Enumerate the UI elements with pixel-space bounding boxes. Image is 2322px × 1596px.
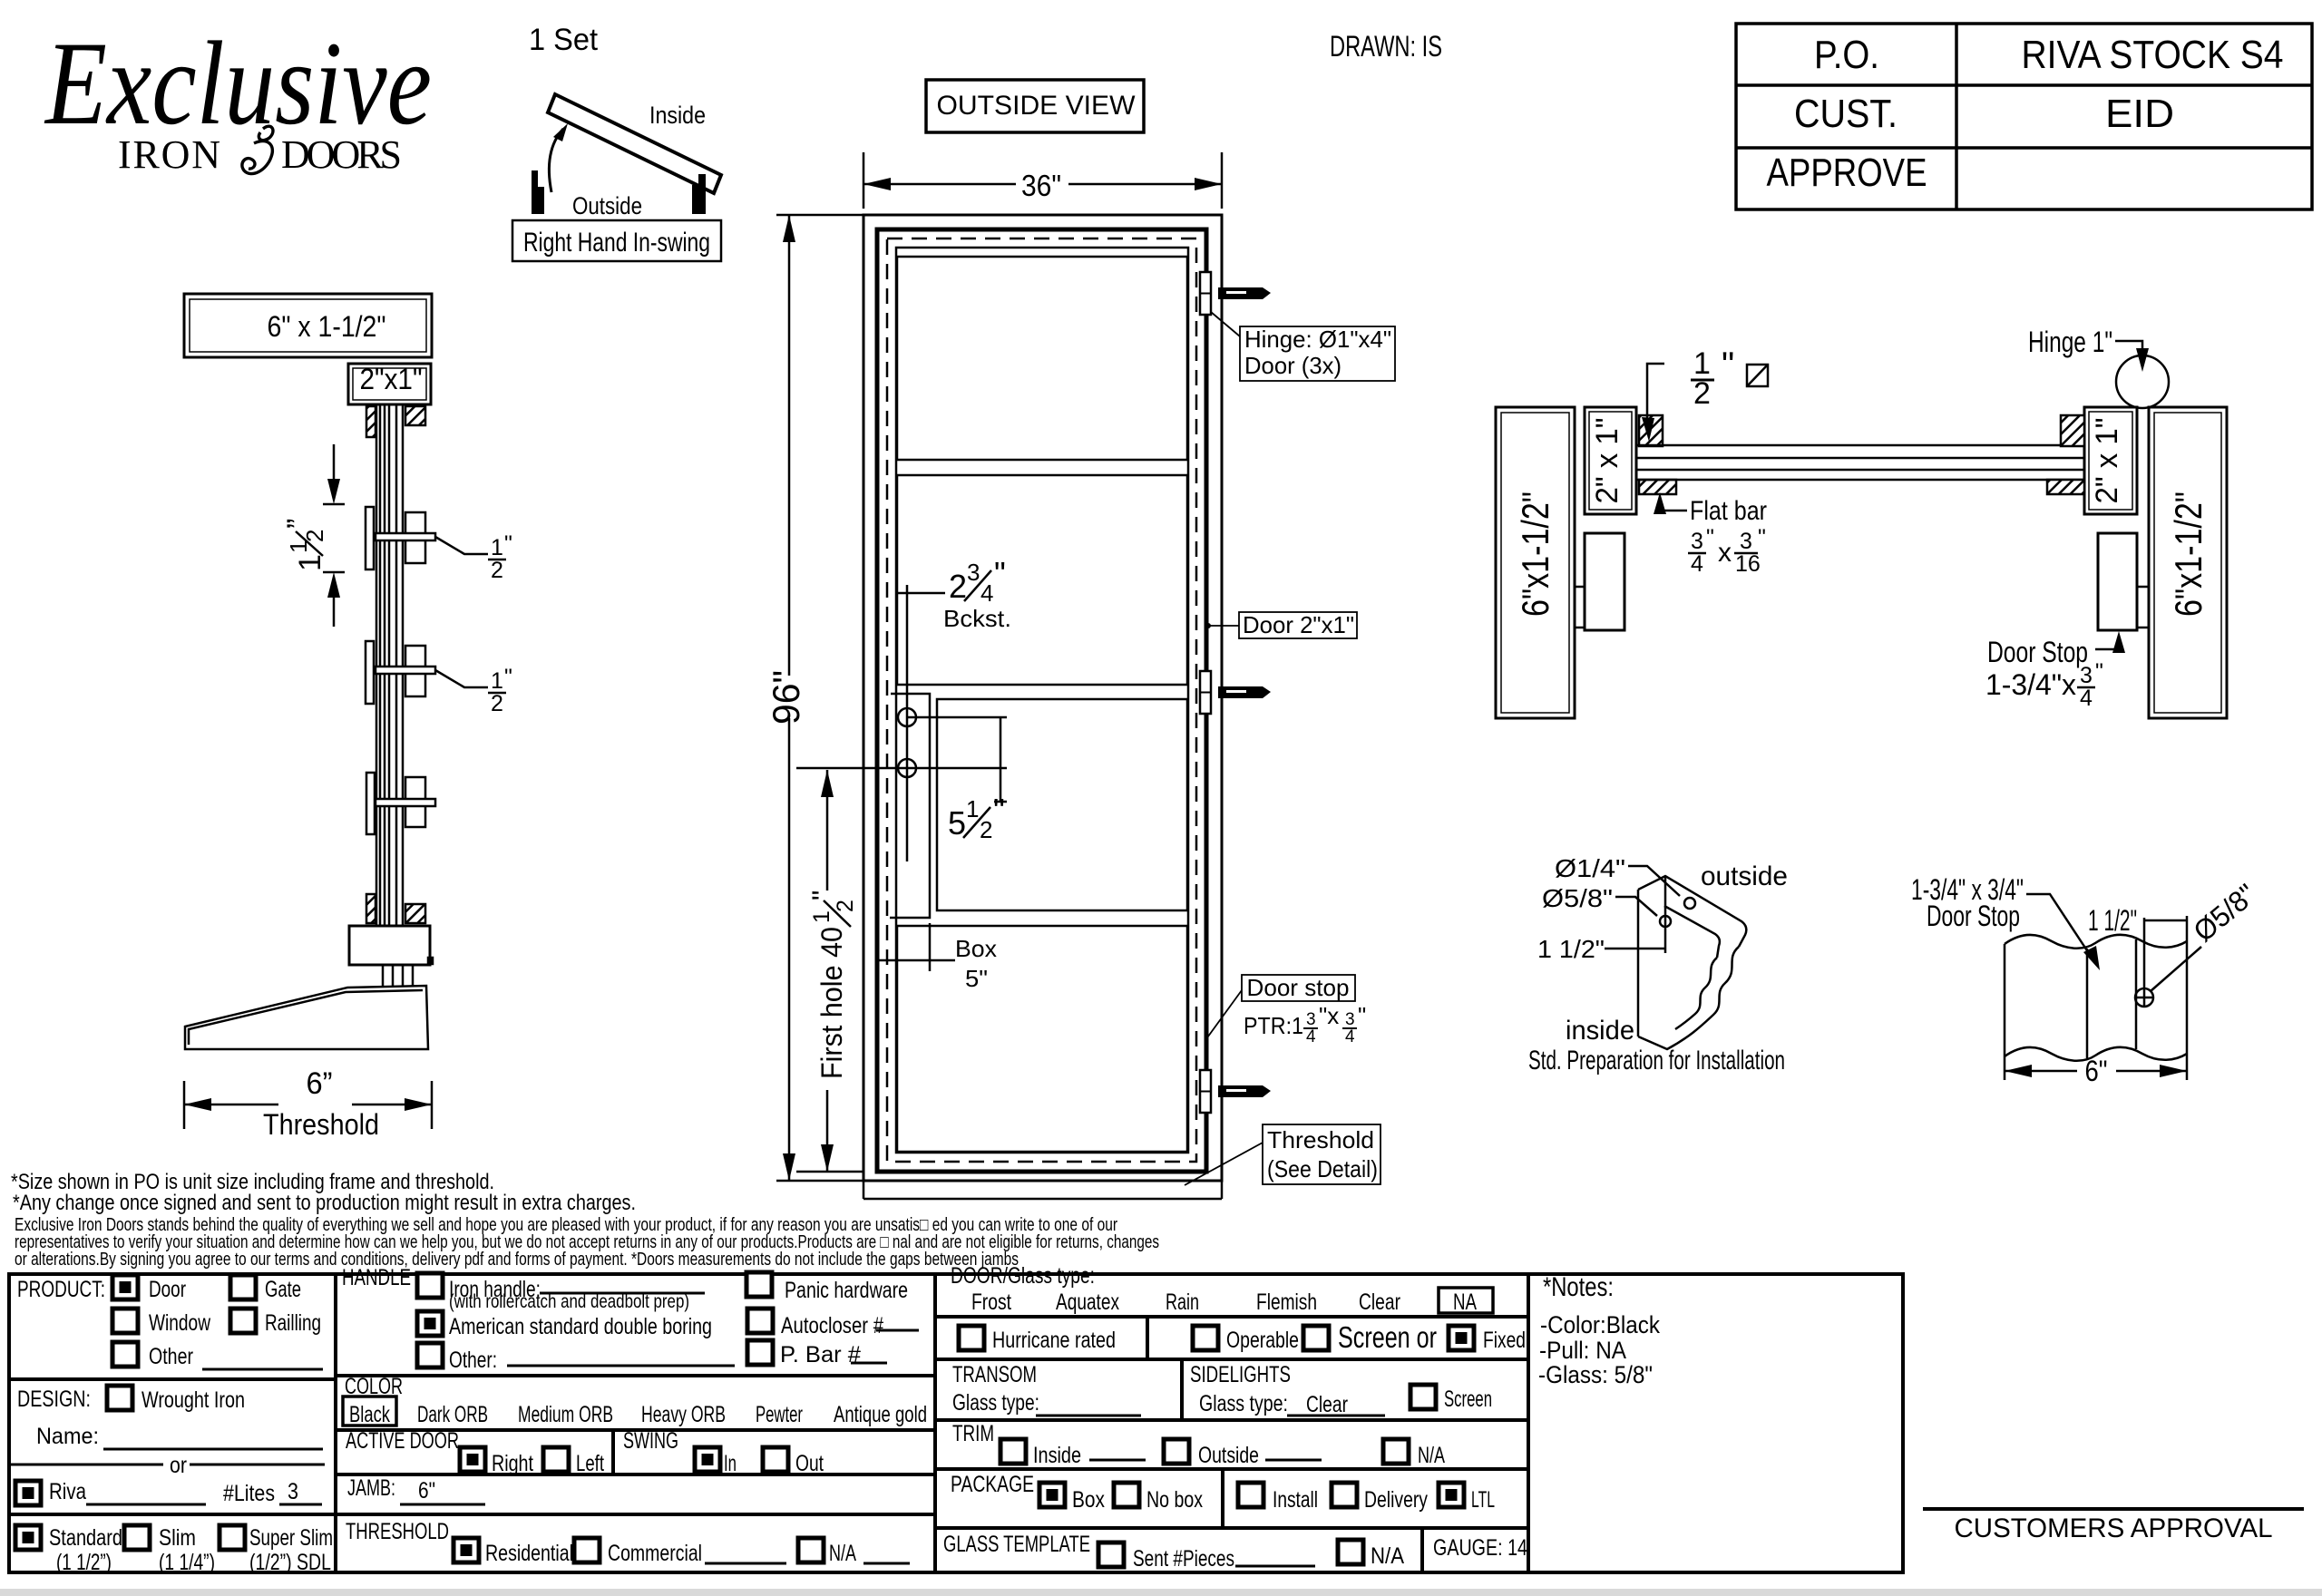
svg-text:Flemish: Flemish: [1256, 1289, 1317, 1315]
svg-text:N/A: N/A: [1418, 1443, 1445, 1468]
svg-text:Glass type:: Glass type:: [1199, 1391, 1288, 1416]
svg-text:6"x1-1/2": 6"x1-1/2": [1514, 491, 1556, 617]
svg-text:Flat bar: Flat bar: [1690, 496, 1767, 526]
svg-text:2" x 1": 2" x 1": [1590, 418, 1624, 504]
svg-text:Hurricane rated: Hurricane rated: [992, 1328, 1116, 1353]
svg-text:Inside: Inside: [649, 102, 706, 129]
svg-text:or alterations.By signing you: or alterations.By signing you agree to o…: [15, 1250, 1019, 1270]
svg-text:3: 3: [1306, 1010, 1316, 1029]
svg-text:EID: EID: [2105, 92, 2174, 136]
svg-text:": ": [504, 665, 512, 690]
svg-text:6”: 6”: [307, 1066, 333, 1101]
svg-text:American standard double borin: American standard double boring: [449, 1314, 712, 1339]
svg-text:Right Hand In-swing: Right Hand In-swing: [523, 228, 710, 258]
svg-text:96": 96": [765, 670, 807, 725]
svg-text:P.O.: P.O.: [1814, 33, 1879, 77]
svg-text:Screen or: Screen or: [1338, 1320, 1437, 1354]
svg-text:N/A: N/A: [1371, 1543, 1404, 1569]
svg-text:": ": [2095, 659, 2103, 685]
svg-text:(See Detail): (See Detail): [1267, 1155, 1378, 1182]
svg-text:1: 1: [966, 795, 979, 822]
svg-text:Hinge 1": Hinge 1": [2028, 326, 2112, 358]
svg-text:NA: NA: [1453, 1289, 1477, 1315]
svg-text:5": 5": [965, 965, 988, 992]
svg-text:LTL: LTL: [1471, 1487, 1495, 1513]
svg-text:Glass type:: Glass type:: [952, 1390, 1039, 1416]
svg-text:Residential: Residential: [485, 1541, 573, 1566]
svg-text:Window: Window: [149, 1310, 211, 1336]
svg-text:Door Stop: Door Stop: [1987, 636, 2088, 668]
svg-text:2"x1": 2"x1": [360, 363, 423, 395]
svg-text:Threshold: Threshold: [263, 1108, 379, 1141]
svg-text:": ": [806, 890, 839, 900]
svg-text:P. Bar #: P. Bar #: [780, 1342, 861, 1367]
svg-text:Exclusive: Exclusive: [44, 16, 432, 150]
svg-text:TRANSOM: TRANSOM: [952, 1362, 1037, 1387]
svg-text:Outside: Outside: [572, 192, 642, 219]
svg-text:(1 1/2”): (1 1/2”): [56, 1550, 112, 1575]
svg-text:4: 4: [2080, 686, 2093, 711]
svg-text:Std. Preparation for Installat: Std. Preparation for Installation: [1528, 1046, 1785, 1075]
svg-text:Door (3x): Door (3x): [1244, 352, 1341, 379]
svg-text:Autocloser #: Autocloser #: [781, 1313, 883, 1338]
svg-text:SIDELIGHTS: SIDELIGHTS: [1190, 1362, 1291, 1387]
svg-text:Gate: Gate: [265, 1277, 301, 1302]
svg-text:CUST.: CUST.: [1794, 92, 1898, 136]
svg-text:Railling: Railling: [265, 1310, 321, 1336]
svg-text:1-3/4"x: 1-3/4"x: [1985, 668, 2076, 701]
svg-text:Door 2"x1": Door 2"x1": [1243, 611, 1354, 638]
svg-text:Left: Left: [576, 1451, 604, 1476]
svg-text:Box: Box: [955, 935, 997, 962]
svg-text:Out: Out: [795, 1451, 824, 1476]
svg-text:": ": [994, 555, 1006, 592]
svg-text:Slim: Slim: [159, 1525, 196, 1551]
svg-text:3: 3: [288, 1479, 298, 1504]
svg-text:Frost: Frost: [971, 1289, 1011, 1315]
svg-text:3: 3: [967, 559, 980, 586]
svg-text:In: In: [724, 1451, 737, 1476]
svg-text:”: ”: [281, 519, 316, 529]
svg-text:": ": [993, 792, 1005, 829]
svg-text:4: 4: [981, 579, 993, 607]
svg-text:CUSTOMERS APPROVAL: CUSTOMERS APPROVAL: [1955, 1513, 2273, 1543]
svg-text:Dark ORB: Dark ORB: [417, 1402, 488, 1427]
svg-text:2: 2: [949, 568, 967, 605]
svg-text:Medium ORB: Medium ORB: [518, 1402, 613, 1427]
svg-text:Bckst.: Bckst.: [943, 605, 1011, 632]
svg-text:No box: No box: [1146, 1487, 1203, 1513]
svg-text:Commercial: Commercial: [608, 1541, 702, 1566]
svg-text:36": 36": [1021, 169, 1061, 202]
svg-text:Fixed: Fixed: [1483, 1328, 1526, 1353]
svg-text:SWING: SWING: [623, 1428, 678, 1454]
svg-text:1: 1: [491, 535, 503, 560]
svg-text:Standard: Standard: [49, 1525, 122, 1551]
svg-text:DRAWN: IS: DRAWN: IS: [1330, 30, 1442, 63]
svg-text:4: 4: [1345, 1027, 1355, 1046]
svg-text:Heavy ORB: Heavy ORB: [641, 1402, 726, 1427]
svg-text:Box: Box: [1072, 1487, 1105, 1513]
svg-text:(with rollercatch and deadbolt: (with rollercatch and deadbolt prep): [449, 1291, 689, 1312]
svg-text:-Pull: NA: -Pull: NA: [1539, 1337, 1626, 1364]
svg-text:6": 6": [418, 1478, 435, 1504]
svg-text:Aquatex: Aquatex: [1056, 1289, 1119, 1315]
svg-text:First hole 40: First hole 40: [815, 927, 848, 1079]
svg-text:Pewter: Pewter: [756, 1402, 803, 1427]
svg-text:": ": [504, 531, 512, 557]
svg-text:Door stop: Door stop: [1247, 974, 1350, 1001]
svg-text:DOORS: DOORS: [281, 132, 408, 177]
svg-text:Panic hardware: Panic hardware: [785, 1278, 908, 1303]
svg-text:1: 1: [491, 668, 503, 694]
svg-text:Door Stop: Door Stop: [1927, 900, 2020, 932]
svg-text:1: 1: [293, 554, 327, 571]
svg-text:1 Set: 1 Set: [529, 23, 599, 57]
svg-text:PRODUCT:: PRODUCT:: [17, 1277, 105, 1302]
svg-text:or: or: [170, 1453, 187, 1478]
svg-text:Antique gold: Antique gold: [834, 1402, 927, 1427]
svg-text:16: 16: [1735, 551, 1761, 577]
svg-text:2: 2: [980, 816, 992, 843]
svg-text:Rain: Rain: [1166, 1289, 1199, 1315]
svg-text:3: 3: [2080, 663, 2093, 688]
svg-text:Door: Door: [149, 1277, 186, 1302]
svg-text:Other: Other: [149, 1344, 193, 1369]
svg-text:Sent #Pieces: Sent #Pieces: [1133, 1546, 1234, 1572]
svg-text:Name:: Name:: [36, 1424, 99, 1449]
svg-text:IRON: IRON: [118, 132, 229, 177]
svg-text:THRESHOLD: THRESHOLD: [346, 1519, 449, 1544]
svg-text:2: 2: [491, 558, 503, 583]
svg-text:Screen: Screen: [1444, 1387, 1492, 1412]
svg-text:x: x: [1718, 538, 1732, 568]
svg-text:": ": [1758, 525, 1766, 550]
svg-text:outside: outside: [1701, 861, 1788, 891]
svg-text:4: 4: [1306, 1027, 1316, 1046]
svg-text:2: 2: [301, 530, 328, 542]
svg-text:5: 5: [948, 804, 966, 842]
svg-text:Super Slim: Super Slim: [249, 1525, 333, 1551]
svg-text:2: 2: [491, 691, 503, 716]
svg-text:2" x 1": 2" x 1": [2090, 418, 2124, 504]
svg-text:-Glass: 5/8": -Glass: 5/8": [1538, 1361, 1653, 1388]
svg-text:HANDLE: HANDLE: [342, 1265, 411, 1290]
svg-text:TRIM: TRIM: [952, 1421, 994, 1446]
svg-text:OUTSIDE VIEW: OUTSIDE VIEW: [937, 91, 1137, 121]
svg-text:": ": [1722, 345, 1734, 385]
svg-text:Ø5/8": Ø5/8": [1542, 884, 1613, 912]
svg-text:2: 2: [833, 900, 858, 912]
svg-text:-Color:Black: -Color:Black: [1540, 1311, 1660, 1338]
svg-text:(1 1/4”): (1 1/4”): [159, 1550, 215, 1575]
svg-text:6"x1-1/2": 6"x1-1/2": [2167, 491, 2210, 617]
svg-text:Riva: Riva: [49, 1479, 86, 1504]
svg-text:*Any change once signed and se: *Any change once signed and sent to prod…: [13, 1191, 636, 1215]
svg-text:4: 4: [1691, 551, 1703, 577]
svg-text:Ø1/4": Ø1/4": [1555, 854, 1625, 882]
svg-text:2: 2: [1693, 376, 1711, 411]
svg-text:6" x 1-1/2": 6" x 1-1/2": [268, 310, 386, 343]
svg-text:Wrought Iron: Wrought Iron: [141, 1387, 245, 1413]
svg-text:": ": [1358, 1002, 1366, 1029]
svg-text:Install: Install: [1273, 1487, 1318, 1513]
svg-text:Black: Black: [349, 1402, 390, 1427]
svg-text:inside: inside: [1566, 1016, 1634, 1046]
svg-text:GLASS TEMPLATE: GLASS TEMPLATE: [943, 1532, 1090, 1557]
svg-text:1 1/2": 1 1/2": [2088, 904, 2137, 937]
svg-text:DOOR/Glass type:: DOOR/Glass type:: [951, 1263, 1095, 1289]
svg-text:": ": [1706, 525, 1714, 550]
svg-text:Right: Right: [492, 1451, 533, 1476]
svg-text:Clear: Clear: [1306, 1392, 1348, 1417]
svg-text:JAMB:: JAMB:: [347, 1475, 395, 1501]
svg-text:APPROVE: APPROVE: [1767, 151, 1927, 195]
svg-text:Hinge: Ø1"x4": Hinge: Ø1"x4": [1244, 326, 1391, 353]
svg-text:DESIGN:: DESIGN:: [17, 1387, 91, 1412]
svg-text:3: 3: [1740, 529, 1752, 554]
svg-text:1 1/2": 1 1/2": [1537, 935, 1605, 963]
svg-text:3: 3: [1691, 529, 1703, 554]
svg-text:Delivery: Delivery: [1364, 1487, 1428, 1513]
svg-text:*Notes:: *Notes:: [1543, 1272, 1614, 1302]
svg-text:Clear: Clear: [1359, 1289, 1400, 1315]
svg-text:RIVA STOCK S4: RIVA STOCK S4: [2022, 33, 2284, 77]
svg-text:GAUGE: 14: GAUGE: 14: [1433, 1535, 1527, 1561]
svg-text:Inside: Inside: [1033, 1443, 1081, 1468]
svg-text:N/A: N/A: [829, 1541, 856, 1566]
svg-text:3: 3: [1345, 1010, 1355, 1029]
svg-text:Operable: Operable: [1226, 1328, 1299, 1353]
svg-text:#Lites: #Lites: [223, 1481, 275, 1506]
svg-text:6": 6": [2085, 1055, 2108, 1087]
svg-text:1: 1: [809, 910, 834, 923]
svg-text:Other:: Other:: [449, 1348, 497, 1373]
svg-text:Outside: Outside: [1198, 1443, 1259, 1468]
svg-text:PTR:1: PTR:1: [1244, 1012, 1303, 1039]
svg-text:"x: "x: [1319, 1002, 1339, 1029]
svg-text:Threshold: Threshold: [1267, 1126, 1374, 1153]
svg-text:PACKAGE: PACKAGE: [951, 1472, 1034, 1497]
svg-text:ACTIVE DOOR: ACTIVE DOOR: [346, 1428, 459, 1454]
svg-text:(1/2”) SDL: (1/2”) SDL: [249, 1550, 331, 1575]
